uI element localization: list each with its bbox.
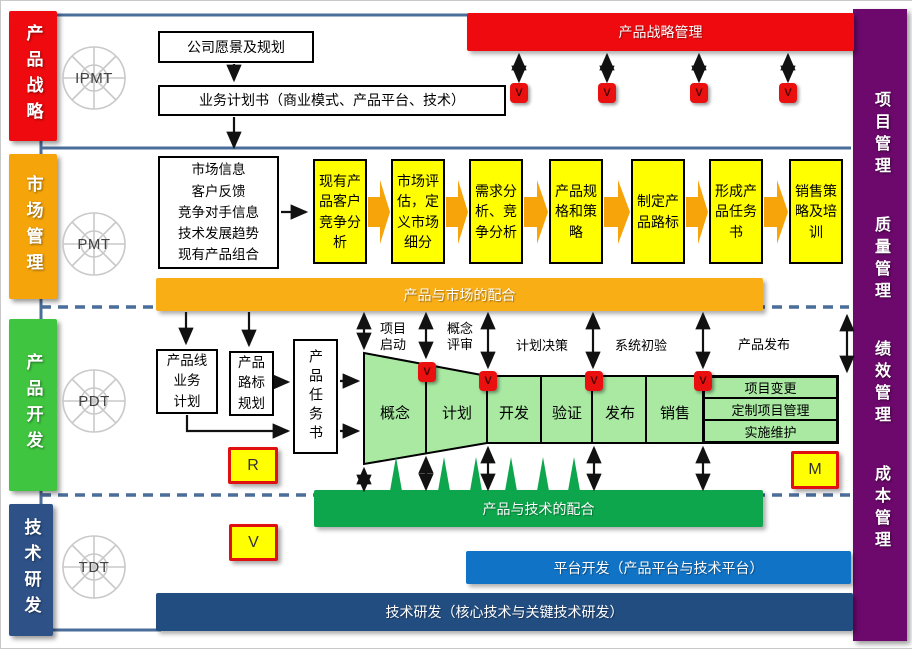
left-bar-tech-research: 技术研发	[9, 504, 53, 636]
stage-verify: 验证	[543, 402, 591, 423]
banner-product-strategy-management: 产品战略管理	[467, 13, 854, 51]
funnel-gate-sales: V	[694, 371, 712, 391]
banner-tech-research: 技术研发（核心技术与关键技术研发）	[156, 593, 853, 631]
charter-box-label: 产品任务书	[305, 349, 326, 444]
market-step-5: 制定产品路标	[631, 159, 685, 264]
right-bar-management: 项目管理 质量管理 绩效管理 成本管理	[853, 9, 907, 641]
banner-product-tech-fit: 产品与技术的配合	[314, 490, 763, 527]
gate-label-product-release: 产品发布	[728, 337, 800, 353]
team-label: IPMT	[61, 45, 127, 111]
funnel-gate-release: V	[585, 371, 603, 391]
left-bar-label: 市场管理	[21, 175, 46, 279]
banner-platform-development: 平台开发（产品平台与技术平台）	[466, 551, 851, 584]
left-bar-label: 技术研发	[19, 518, 44, 622]
left-bar-product-strategy: 产品战略	[9, 11, 57, 141]
milestone-box-m: M	[791, 451, 839, 489]
stage-plan: 计划	[433, 402, 481, 423]
market-inputs-box: 市场信息 客户反馈 竞争对手信息 技术发展趋势 现有产品组合	[158, 156, 279, 269]
left-bar-label: 产品开发	[21, 353, 46, 457]
ops-box-custom-project: 定制项目管理	[703, 397, 838, 421]
stage-concept: 概念	[371, 402, 419, 423]
vision-box: 公司愿景及规划	[158, 31, 314, 63]
funnel-gate-concept: V	[418, 362, 436, 382]
market-step-3: 需求分析、竞争分析	[469, 159, 523, 264]
market-step-2: 市场评估，定义市场细分	[391, 159, 445, 264]
right-bar-item: 成本管理	[868, 465, 892, 553]
gate-label-project-start: 项目 启动	[367, 321, 419, 354]
funnel-bottom-arrows	[364, 448, 703, 490]
strategy-gate-arrows	[519, 55, 788, 81]
market-step-4: 产品规格和策略	[549, 159, 603, 264]
product-line-plan-box: 产品线 业务 计划	[156, 349, 218, 414]
roadmap-box: 产品 路标 规划	[229, 351, 274, 416]
ops-box-implementation: 实施维护	[703, 419, 838, 443]
team-tdt: TDT	[61, 534, 127, 600]
team-pmt: PMT	[61, 211, 127, 277]
left-bar-product-development: 产品开发	[9, 319, 57, 491]
team-ipmt: IPMT	[61, 45, 127, 111]
team-pdt: PDT	[61, 368, 127, 434]
right-bar-item: 绩效管理	[868, 340, 892, 428]
left-bar-market-management: 市场管理	[9, 154, 57, 299]
charter-box: 产品任务书	[293, 339, 338, 454]
strategy-gate-4: V	[779, 83, 797, 103]
business-plan-box: 业务计划书（商业模式、产品平台、技术）	[158, 85, 506, 116]
gate-label-concept-review: 概念 评审	[434, 321, 486, 354]
right-bar-item: 质量管理	[868, 216, 892, 304]
stage-develop: 开发	[490, 402, 538, 423]
funnel-gate-plan: V	[479, 371, 497, 391]
ipd-process-diagram: 产品战略 市场管理 产品开发 技术研发 项目管理 质量管理 绩效管理 成本管理 …	[0, 0, 912, 649]
ops-box-project-change: 项目变更	[703, 376, 838, 399]
banner-product-market-fit: 产品与市场的配合	[156, 278, 763, 311]
market-step-1: 现有产品客户竞争分析	[313, 159, 367, 264]
review-box-v: V	[229, 524, 278, 561]
strategy-gate-3: V	[690, 83, 708, 103]
strategy-gate-2: V	[598, 83, 616, 103]
team-label: TDT	[61, 534, 127, 600]
left-bar-label: 产品战略	[21, 24, 46, 128]
tech-support-spikes	[390, 457, 580, 491]
market-step-6: 形成产品任务书	[709, 159, 763, 264]
right-bar-item: 项目管理	[868, 91, 892, 179]
team-label: PMT	[61, 211, 127, 277]
review-box-r: R	[228, 447, 278, 484]
team-label: PDT	[61, 368, 127, 434]
gate-label-system-test: 系统初验	[605, 338, 677, 354]
stage-release: 发布	[596, 402, 644, 423]
gate-label-plan-decision: 计划决策	[506, 338, 578, 354]
strategy-gate-1: V	[510, 83, 528, 103]
stage-sales: 销售	[651, 402, 699, 423]
market-step-7: 销售策略及培训	[789, 159, 843, 264]
